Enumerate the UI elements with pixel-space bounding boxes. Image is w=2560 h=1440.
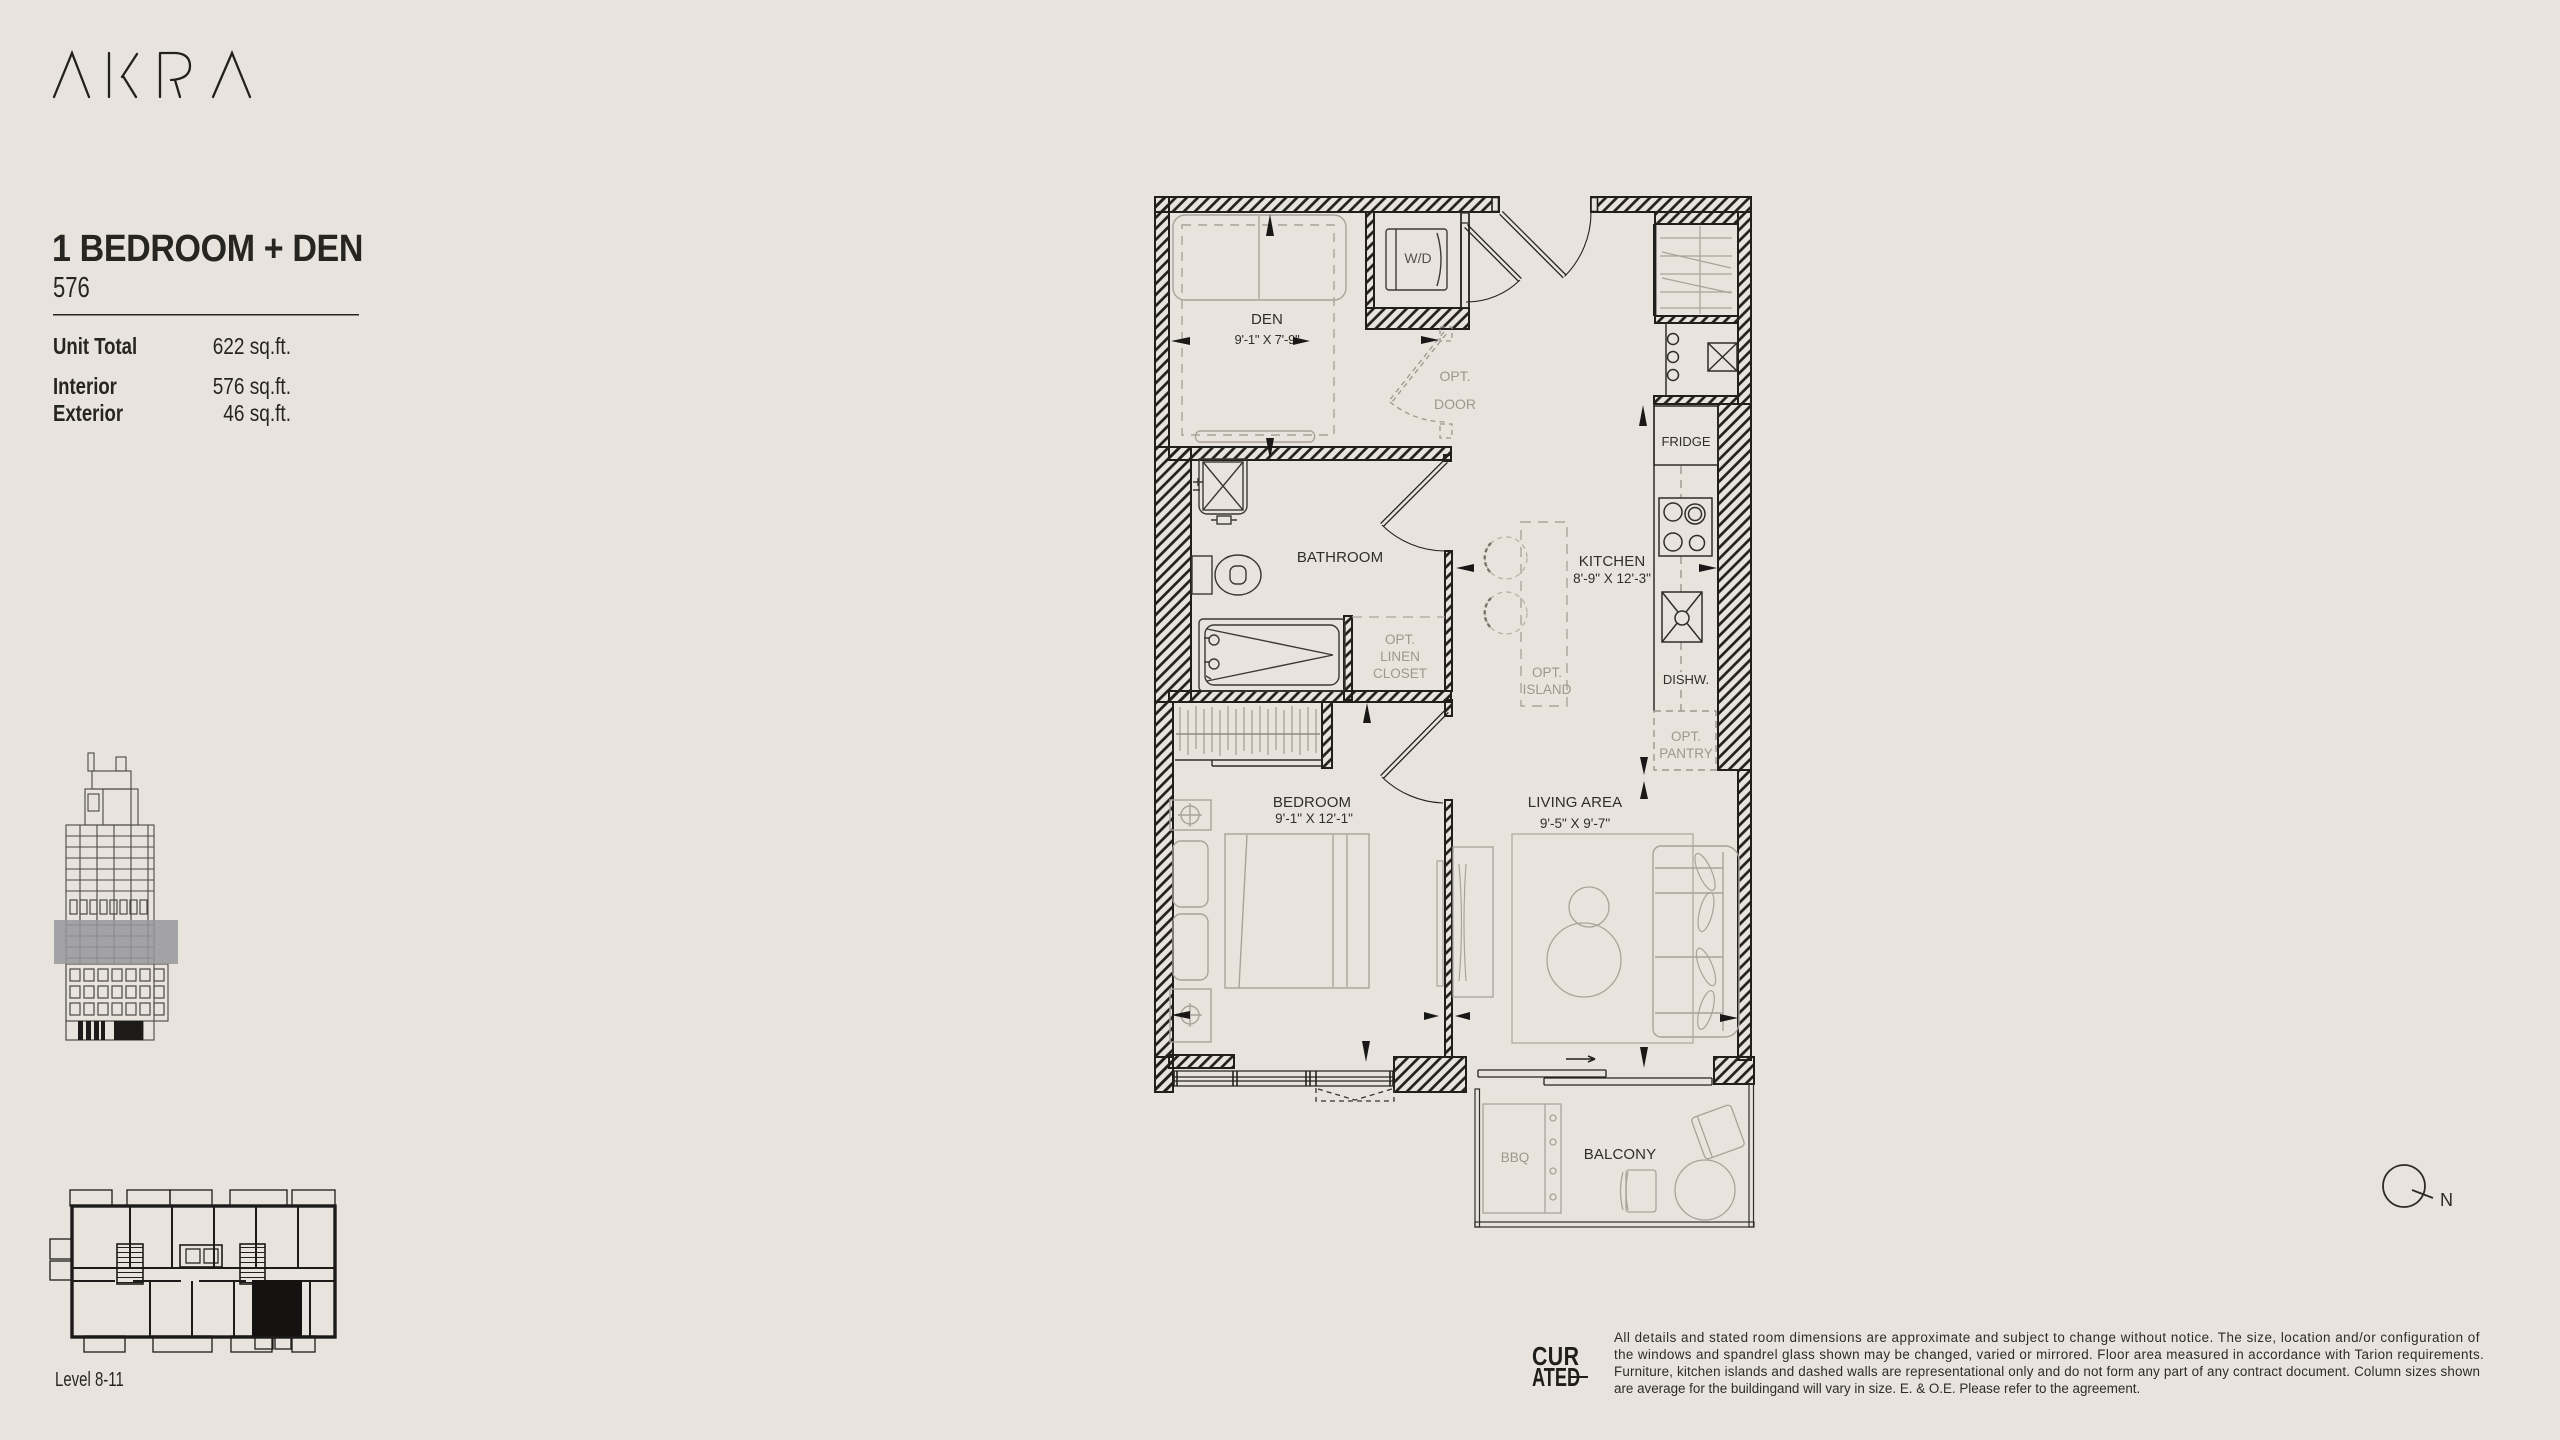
svg-text:46 sq.ft.: 46 sq.ft. [223, 400, 291, 426]
svg-text:9'-1" X 7'-9": 9'-1" X 7'-9" [1234, 332, 1300, 347]
svg-text:W/D: W/D [1404, 250, 1431, 266]
svg-text:BALCONY: BALCONY [1584, 1146, 1656, 1163]
svg-text:All details and stated room di: All details and stated room dimensions a… [1614, 1330, 2480, 1345]
svg-text:KITCHEN: KITCHEN [1579, 553, 1646, 570]
svg-text:BEDROOM: BEDROOM [1273, 794, 1351, 811]
svg-text:576: 576 [53, 272, 90, 304]
svg-text:N: N [2440, 1190, 2453, 1210]
svg-text:DEN: DEN [1251, 311, 1283, 328]
svg-text:Exterior: Exterior [53, 401, 123, 427]
svg-text:OPT.: OPT. [1671, 729, 1701, 744]
svg-text:DISHW.: DISHW. [1663, 672, 1709, 687]
svg-text:DOOR: DOOR [1434, 396, 1476, 412]
svg-text:OPT.: OPT. [1385, 632, 1415, 647]
svg-text:Interior: Interior [53, 374, 117, 400]
svg-text:PANTRY: PANTRY [1659, 746, 1713, 761]
svg-text:1 BEDROOM + DEN: 1 BEDROOM + DEN [52, 226, 363, 269]
svg-text:BBQ: BBQ [1501, 1150, 1530, 1165]
svg-text:OPT.: OPT. [1439, 368, 1470, 384]
svg-text:576 sq.ft.: 576 sq.ft. [213, 373, 291, 399]
svg-text:LIVING AREA: LIVING AREA [1528, 794, 1622, 811]
svg-text:Unit Total: Unit Total [53, 334, 137, 360]
svg-text:ISLAND: ISLAND [1523, 682, 1572, 697]
svg-text:Furniture, kitchen islands and: Furniture, kitchen islands and dashed wa… [1614, 1364, 2480, 1379]
svg-text:BATHROOM: BATHROOM [1297, 549, 1383, 566]
svg-text:OPT.: OPT. [1532, 665, 1562, 680]
svg-text:8'-9" X 12'-3": 8'-9" X 12'-3" [1573, 571, 1651, 586]
svg-text:are average for the buildingan: are average for the buildingand will var… [1614, 1381, 2140, 1396]
svg-text:Level 8-11: Level 8-11 [55, 1368, 124, 1391]
svg-text:9'-1" X 12'-1": 9'-1" X 12'-1" [1275, 811, 1353, 826]
svg-text:FRIDGE: FRIDGE [1661, 434, 1710, 449]
svg-text:9'-5" X 9'-7": 9'-5" X 9'-7" [1540, 816, 1610, 831]
svg-text:the windows and spandrel glass: the windows and spandrel glass shown may… [1614, 1347, 2484, 1362]
svg-text:CLOSET: CLOSET [1373, 666, 1427, 681]
svg-text:622 sq.ft.: 622 sq.ft. [213, 333, 291, 359]
svg-text:LINEN: LINEN [1380, 649, 1420, 664]
